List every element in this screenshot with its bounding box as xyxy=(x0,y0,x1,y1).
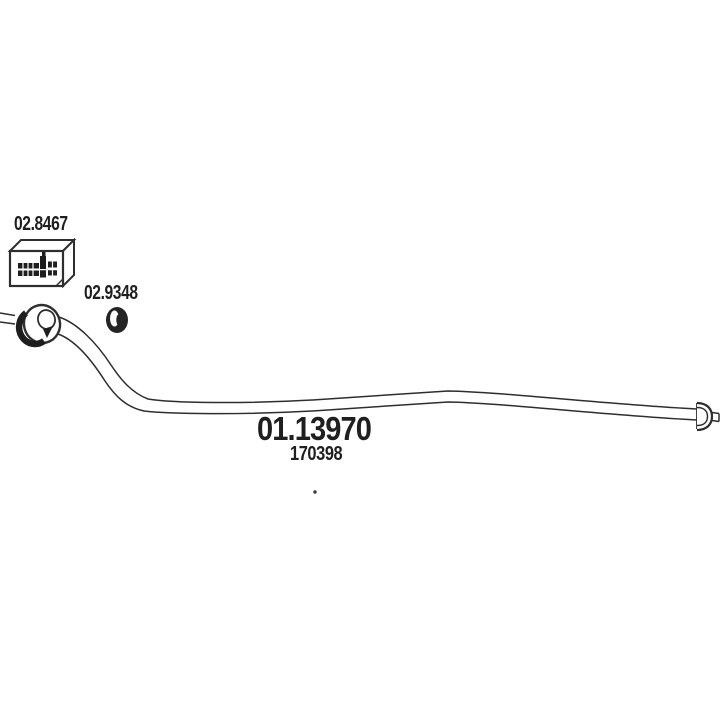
ring-part-code-label: 02.9348 xyxy=(84,283,138,303)
flange-joint-drawing xyxy=(0,301,64,347)
parts-diagram-canvas: 02.8467 02.9348 01.13970 170398 xyxy=(0,0,720,720)
clamp-ring-drawing xyxy=(106,307,128,333)
print-dot xyxy=(313,490,316,493)
exhaust-pipe-drawing xyxy=(58,317,697,420)
rubber-mount-block-drawing xyxy=(10,240,74,286)
end-collar-drawing xyxy=(697,403,719,430)
mount-part-code-label: 02.8467 xyxy=(14,214,68,234)
pipe-oe-number-label: 170398 xyxy=(290,444,342,464)
diagram-line-art xyxy=(0,0,720,720)
pipe-part-code-label: 01.13970 xyxy=(257,412,371,445)
